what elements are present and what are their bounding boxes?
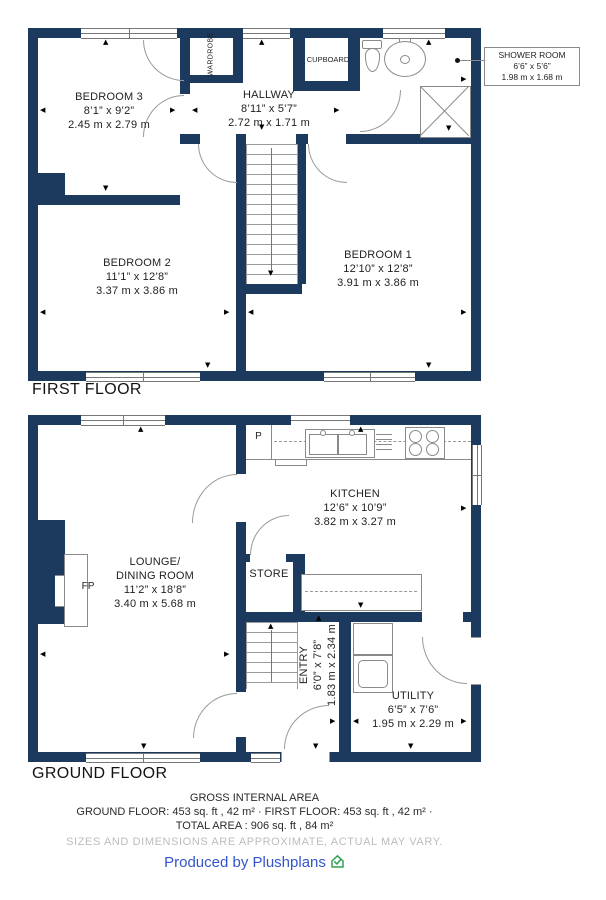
room-name: HALLWAY <box>194 88 344 102</box>
floor-areas-line: GROUND FLOOR: 453 sq. ft , 42 m² · FIRST… <box>28 805 481 819</box>
wall <box>236 294 246 371</box>
gross-internal-area-title: GROSS INTERNAL AREA <box>28 791 481 805</box>
room-imperial: 12’10” x 12’8” <box>298 262 458 276</box>
room-metric: 3.82 m x 3.27 m <box>275 515 435 529</box>
window <box>251 753 280 763</box>
sink-tap <box>320 430 326 436</box>
wall <box>236 737 246 752</box>
room-metric: 1.98 m x 1.68 m <box>486 72 578 83</box>
sink-tap <box>349 430 355 436</box>
bedroom1-label: BEDROOM 1 12’10” x 12’8” 3.91 m x 3.86 m <box>298 248 458 290</box>
door-arc <box>193 693 237 738</box>
drainer-line <box>376 439 392 440</box>
drainer-line <box>376 444 392 445</box>
room-imperial: 11’2” x 18’8” <box>75 583 235 597</box>
wall <box>296 134 308 144</box>
window <box>243 28 290 39</box>
wall <box>471 28 481 381</box>
total-area-line: TOTAL AREA : 906 sq. ft , 84 m² <box>28 819 481 833</box>
window <box>472 445 482 505</box>
utility-counter <box>353 623 393 655</box>
room-metric: 3.91 m x 3.86 m <box>298 276 458 290</box>
door-arc <box>143 40 184 81</box>
room-imperial: 8’1” x 9’2” <box>38 104 180 118</box>
wall <box>236 425 246 474</box>
room-imperial: 8’11” x 5’7” <box>194 102 344 116</box>
chimney-breast <box>38 520 65 624</box>
wall <box>236 554 250 562</box>
window <box>383 28 445 39</box>
basin <box>400 55 410 64</box>
window <box>81 28 177 39</box>
room-name: BEDROOM 1 <box>298 248 458 262</box>
hob-burner <box>409 430 422 443</box>
wall <box>348 38 360 91</box>
sink-basin <box>338 434 367 455</box>
wall <box>236 522 246 692</box>
utility-door <box>471 637 481 685</box>
ground-floor-plan: ▲ P FP STORE LOUNGE/ DINING ROOM 11’2” x… <box>28 415 481 762</box>
wall <box>28 28 38 381</box>
drainer-line <box>376 434 392 435</box>
footer: GROSS INTERNAL AREA GROUND FLOOR: 453 sq… <box>28 791 481 872</box>
credit-line: Produced by Plushplans <box>28 854 481 872</box>
pantry-label: P <box>246 431 271 442</box>
front-door <box>281 752 330 762</box>
wall <box>28 415 38 762</box>
worktop-divider <box>271 425 272 459</box>
callout-leader-line <box>460 60 485 61</box>
door-arc <box>360 90 401 132</box>
peninsula-dash-line <box>305 591 417 592</box>
wall <box>38 195 180 205</box>
wall <box>463 612 471 622</box>
first-floor-title: FIRST FLOOR <box>32 381 142 399</box>
wall <box>236 284 302 294</box>
bedroom3-label: BEDROOM 3 8’1” x 9’2” 2.45 m x 2.79 m <box>38 90 180 132</box>
room-metric: 2.45 m x 2.79 m <box>38 118 180 132</box>
washing-machine <box>358 660 388 688</box>
wall <box>236 134 246 291</box>
ground-floor-title: GROUND FLOOR <box>32 765 167 783</box>
hob-burner <box>409 443 422 456</box>
room-imperial: 6’5” x 7’6” <box>333 703 493 717</box>
room-imperial: 11’1” x 12’8” <box>38 270 236 284</box>
room-name: BEDROOM 3 <box>38 90 180 104</box>
door-arc <box>308 144 347 183</box>
room-name: ENTRY <box>297 600 311 730</box>
wall <box>180 83 190 94</box>
room-name: SHOWER ROOM <box>486 50 578 61</box>
door-arc <box>422 637 467 684</box>
disclaimer-text: SIZES AND DIMENSIONS ARE APPROXIMATE, AC… <box>28 835 481 850</box>
wardrobe-label: WARDROBE <box>208 33 215 77</box>
cupboard-label: CUPBOARD <box>297 55 359 64</box>
drainer-line <box>376 449 392 450</box>
room-metric: 3.40 m x 5.68 m <box>75 597 235 611</box>
door-arc <box>192 474 237 523</box>
room-imperial: 6’6” x 5’6” <box>486 61 578 72</box>
room-metric: 2.72 m x 1.71 m <box>194 116 344 130</box>
worktop-return <box>275 459 307 466</box>
credit-text: Produced by Plushplans <box>164 854 326 871</box>
plushplans-house-icon <box>330 854 345 869</box>
room-metric: 3.37 m x 3.86 m <box>38 284 236 298</box>
kitchen-label: KITCHEN 12’6” x 10’9” 3.82 m x 3.27 m <box>275 487 435 529</box>
hob-burner <box>426 443 439 456</box>
room-name: LOUNGE/ DINING ROOM <box>75 555 235 583</box>
stairs-up: ▲ <box>246 622 298 689</box>
room-name: KITCHEN <box>275 487 435 501</box>
sink-basin <box>309 434 338 455</box>
room-name: UTILITY <box>333 689 493 703</box>
stairs-down: ▼ <box>246 144 298 284</box>
room-imperial: 12’6” x 10’9” <box>275 501 435 515</box>
shower-room-callout: SHOWER ROOM 6’6” x 5’6” 1.98 m x 1.68 m <box>484 47 580 86</box>
hallway-label: HALLWAY 8’11” x 5’7” 2.72 m x 1.71 m <box>194 88 344 130</box>
first-floor-plan: ▼ WARDROBE CUPBOARD BEDROOM 3 8’1” x 9’2… <box>28 28 481 381</box>
toilet <box>365 48 380 72</box>
hob-burner <box>426 430 439 443</box>
window <box>81 415 165 426</box>
room-name: BEDROOM 2 <box>38 256 236 270</box>
window <box>324 372 415 382</box>
door-arc <box>198 144 237 183</box>
lounge-label: LOUNGE/ DINING ROOM 11’2” x 18’8” 3.40 m… <box>75 555 235 611</box>
bedroom2-label: BEDROOM 2 11’1” x 12’8” 3.37 m x 3.86 m <box>38 256 236 298</box>
store-label: STORE <box>238 568 300 580</box>
window <box>86 753 200 763</box>
floorplan-page: ▼ WARDROBE CUPBOARD BEDROOM 3 8’1” x 9’2… <box>0 0 606 900</box>
